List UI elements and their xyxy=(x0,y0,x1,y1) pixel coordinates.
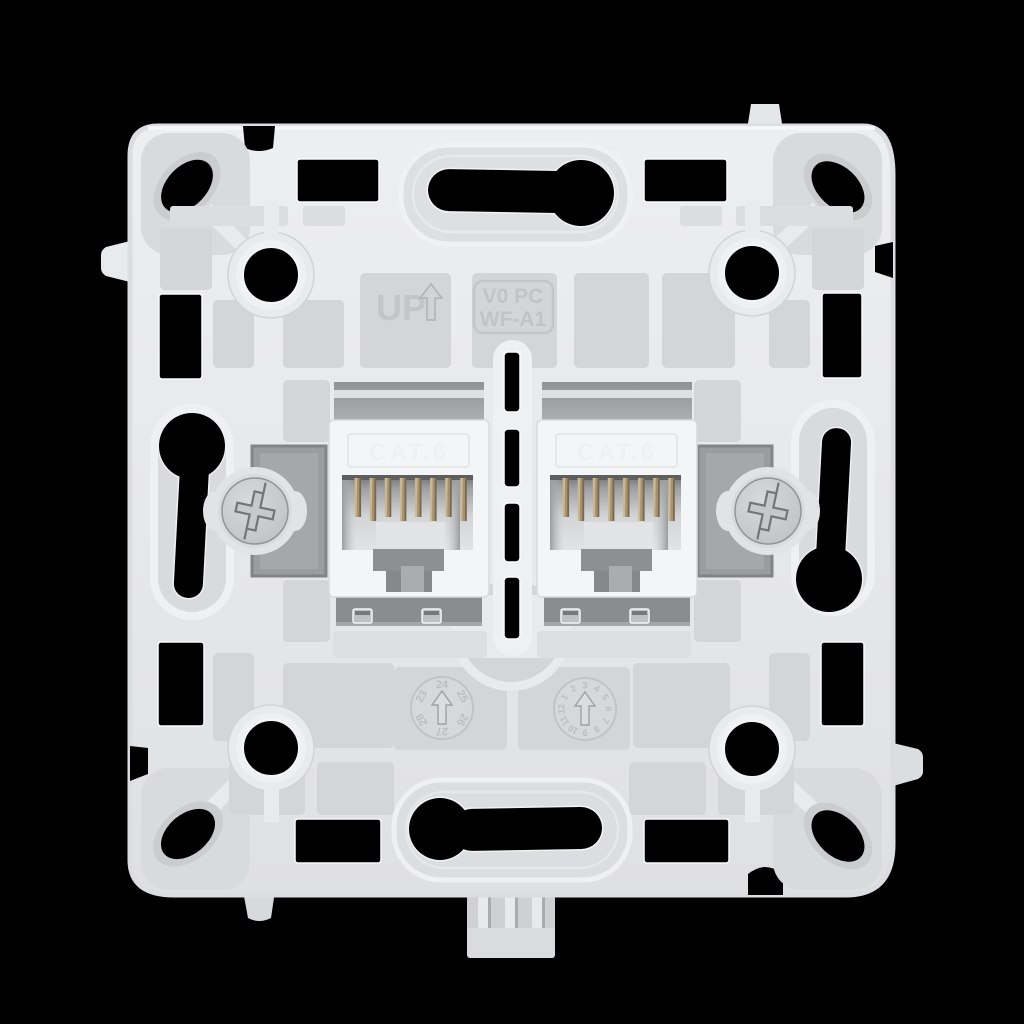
svg-text:CAT.6: CAT.6 xyxy=(369,439,449,466)
svg-text:3: 3 xyxy=(582,680,587,690)
svg-text:UP: UP xyxy=(376,287,426,328)
svg-text:CAT.6: CAT.6 xyxy=(577,439,657,466)
svg-text:WF-A1: WF-A1 xyxy=(480,308,547,331)
svg-text:9: 9 xyxy=(582,728,587,738)
svg-text:27: 27 xyxy=(436,725,448,737)
svg-text:24: 24 xyxy=(436,679,449,691)
svg-text:6: 6 xyxy=(604,706,614,711)
svg-text:V0 PC: V0 PC xyxy=(483,285,544,308)
svg-text:12: 12 xyxy=(556,704,566,714)
